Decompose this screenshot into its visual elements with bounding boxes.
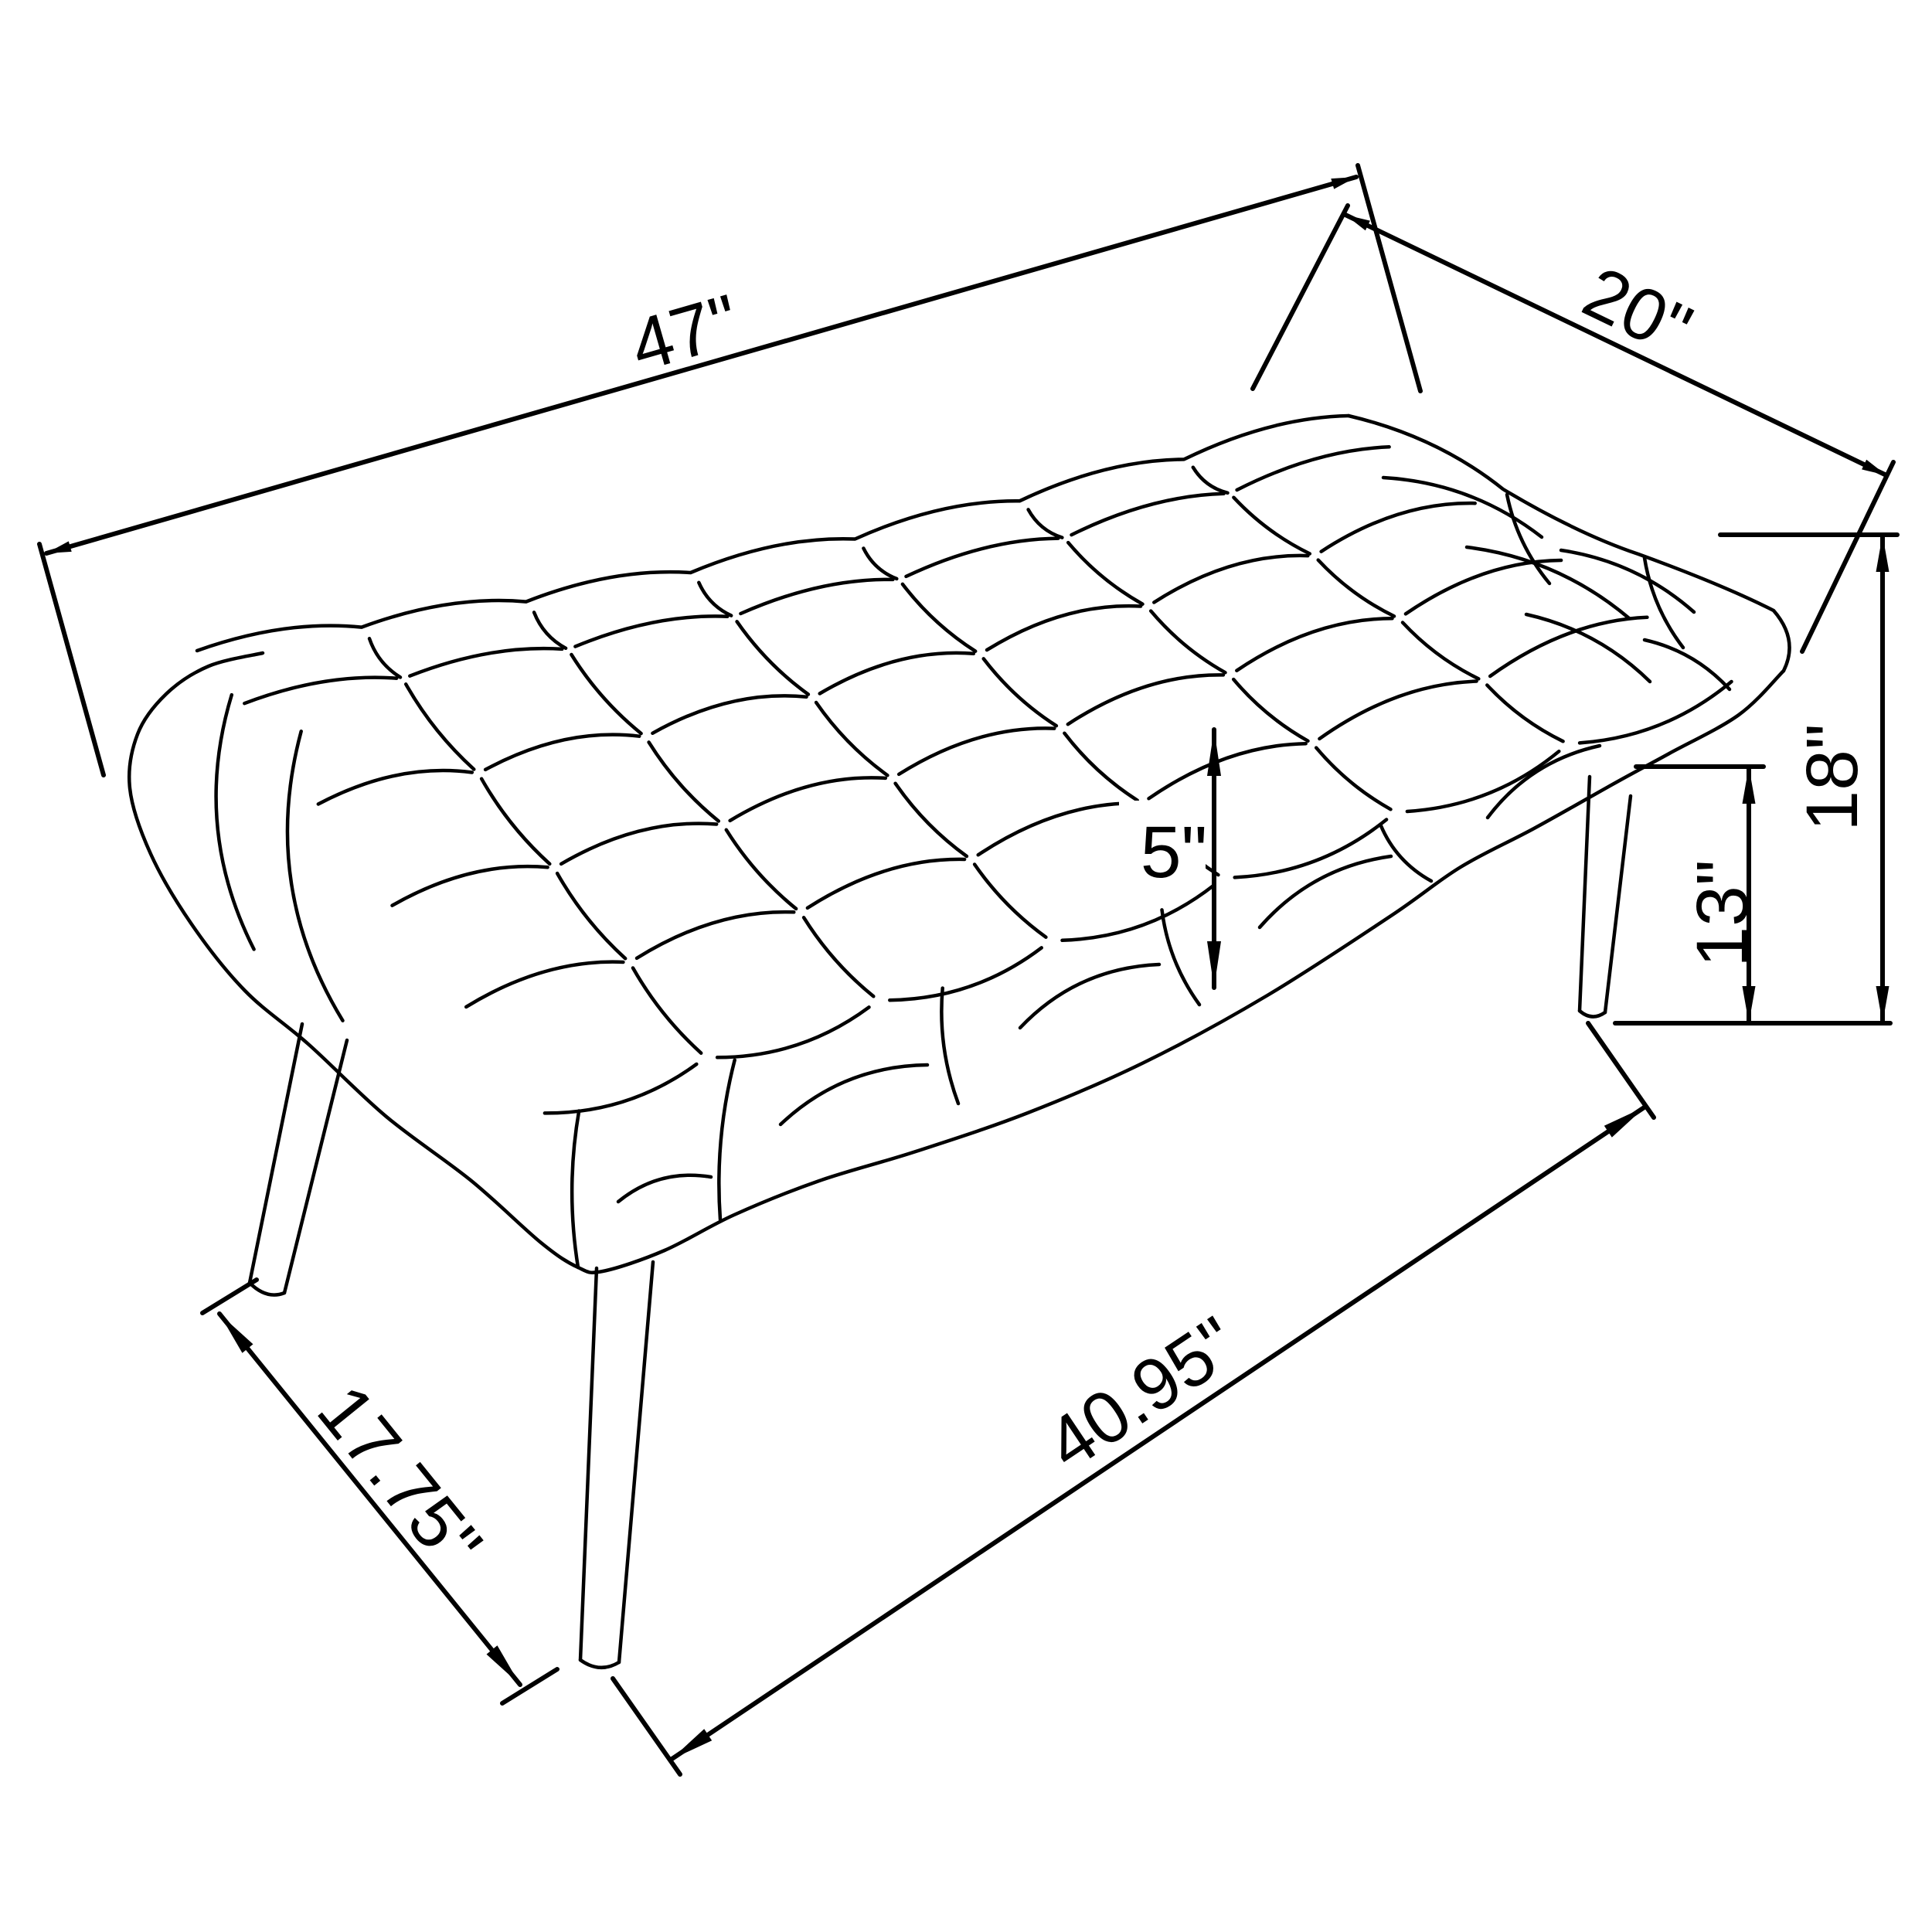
svg-text:18": 18" (1791, 723, 1873, 831)
svg-text:13": 13" (1682, 859, 1764, 967)
svg-text:5": 5" (1141, 811, 1208, 893)
